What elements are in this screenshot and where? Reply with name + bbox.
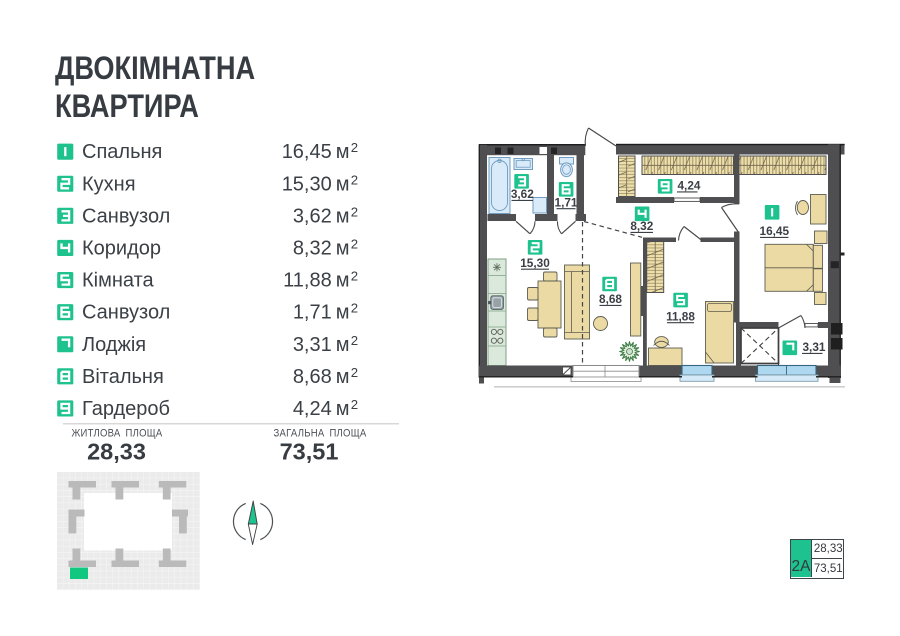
svg-text:4,24: 4,24	[678, 179, 701, 193]
svg-text:16,45 м: 16,45 м	[282, 141, 350, 163]
svg-text:Коридор: Коридор	[82, 238, 161, 260]
svg-text:Вітальня: Вітальня	[82, 366, 164, 388]
svg-text:2: 2	[351, 204, 358, 219]
svg-text:2: 2	[351, 172, 358, 187]
svg-text:3,31: 3,31	[803, 340, 826, 354]
svg-text:Кімната: Кімната	[82, 270, 155, 292]
svg-text:3,31 м: 3,31 м	[293, 334, 350, 356]
svg-text:16,45: 16,45	[760, 224, 790, 238]
svg-text:1,71 м: 1,71 м	[293, 302, 350, 324]
svg-text:8,32 м: 8,32 м	[293, 238, 350, 260]
svg-text:Гардероб: Гардероб	[82, 398, 170, 420]
svg-text:8,68 м: 8,68 м	[293, 366, 350, 388]
svg-text:Кухня: Кухня	[82, 173, 136, 195]
svg-text:Спальня: Спальня	[82, 141, 162, 163]
svg-text:2: 2	[351, 365, 358, 380]
svg-text:73,51: 73,51	[280, 439, 339, 465]
svg-text:2: 2	[351, 269, 358, 284]
svg-text:11,88 м: 11,88 м	[283, 270, 349, 292]
svg-text:3,62 м: 3,62 м	[293, 205, 350, 227]
svg-text:11,88: 11,88	[666, 309, 695, 323]
svg-text:4,24 м: 4,24 м	[293, 398, 350, 420]
svg-text:Санвузол: Санвузол	[82, 302, 170, 324]
svg-text:2: 2	[351, 140, 358, 155]
svg-text:Лоджія: Лоджія	[82, 334, 146, 356]
svg-text:2: 2	[351, 397, 358, 412]
svg-text:1,71: 1,71	[555, 195, 578, 209]
svg-text:2: 2	[351, 301, 358, 316]
svg-text:8,68: 8,68	[599, 292, 622, 306]
svg-text:2: 2	[351, 333, 358, 348]
svg-text:28,33: 28,33	[87, 439, 146, 465]
svg-text:2: 2	[351, 237, 358, 252]
svg-text:Санвузол: Санвузол	[82, 205, 170, 227]
svg-text:3,62: 3,62	[511, 187, 534, 201]
svg-text:15,30: 15,30	[520, 256, 550, 270]
svg-text:8,32: 8,32	[630, 219, 653, 233]
svg-text:15,30 м: 15,30 м	[282, 173, 350, 195]
